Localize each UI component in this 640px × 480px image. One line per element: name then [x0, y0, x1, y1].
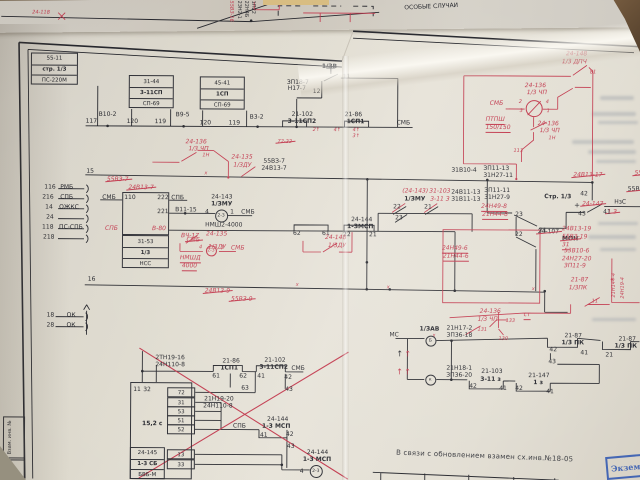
schematic-label: 150/150	[486, 125, 511, 133]
schematic-label: 2	[519, 100, 522, 105]
schematic-label: 1	[230, 210, 234, 216]
schematic-label: 21	[424, 205, 432, 211]
schematic-label: СМБ	[397, 120, 411, 126]
relay-box: 24-1451-3 СББВБ-М	[130, 447, 165, 479]
schematic-label: 113	[513, 149, 523, 154]
schematic-label: 21Н44-6	[443, 254, 469, 262]
schematic-label: 41	[603, 209, 611, 215]
relay-circle: Б	[425, 335, 436, 346]
relay-box: 52	[167, 424, 195, 434]
schematic-label: ↑	[404, 368, 411, 376]
schematic-label: 1/3 ЧП	[527, 90, 547, 96]
schematic-label: В9-5	[176, 112, 190, 118]
schematic-label: 120	[200, 120, 211, 126]
schematic-label: 4	[546, 100, 549, 105]
schematic-label: 42	[284, 375, 292, 381]
schematic-label: 116	[44, 185, 55, 191]
schematic-label: СПБ	[105, 226, 118, 232]
schematic-label: 131	[478, 328, 488, 333]
schematic-label: 55ВЗ-16	[228, 1, 233, 22]
schematic-label: х	[387, 285, 390, 290]
schematic-label: 24-135	[206, 231, 227, 237]
schematic-label: 24-118	[32, 10, 50, 15]
schematic-label: 43	[548, 359, 556, 365]
schematic-label: 118	[42, 225, 53, 231]
schematic-label: 4000	[182, 263, 197, 271]
schematic-label: 31В11-13	[451, 197, 480, 203]
schematic-label: 1/3 ДПЧ	[562, 59, 587, 65]
schematic-label: 22	[515, 232, 523, 238]
schematic-label: 24В13-17	[573, 171, 602, 178]
schematic-label: ВЧ-17	[181, 233, 199, 239]
schematic-label: 22	[393, 204, 401, 210]
schematic-label: ↑	[396, 350, 403, 358]
relay-circle: к	[425, 374, 436, 385]
schematic-label: 14	[45, 205, 53, 211]
schematic-label: 24В13-7	[128, 184, 153, 191]
schematic-label: 1/3ДУ	[328, 243, 346, 249]
schematic-label: 1/ЗМУ	[404, 196, 425, 202]
relay-box	[3, 416, 25, 458]
schematic-label: СМБ	[241, 210, 255, 216]
schematic-label: 18	[47, 313, 55, 319]
schematic-label: 11	[343, 74, 351, 80]
relay-box-row	[123, 193, 168, 236]
schematic-label: 4	[300, 469, 304, 475]
schematic-label: 1-ЗМСП	[347, 224, 373, 230]
schematic-label: 16	[88, 277, 96, 283]
schematic-label: 4	[205, 209, 209, 215]
schematic-label: ЗП11-9	[564, 263, 586, 269]
schematic-label: 43	[287, 444, 295, 450]
schematic-label: 12	[313, 89, 321, 95]
schematic-label: 24-148	[325, 235, 346, 241]
schematic-label: 41	[257, 374, 265, 380]
relay-box-row: 52	[168, 425, 194, 435]
schematic-label: ЗП36-20	[446, 373, 472, 379]
schematic-label: СПБ	[60, 195, 73, 201]
schematic-label: 1СП1	[220, 365, 238, 371]
schematic-label: 72-22	[277, 139, 292, 145]
schematic-label: 23	[395, 215, 403, 221]
schematic-label: НзС	[614, 200, 626, 206]
photographed-schematic-scene: 24-11855ВЗ-1623Н2-122Н4Б1П22ОСОБЫЕ СЛУЧА…	[0, 0, 640, 480]
relay-box-row: 1СП	[201, 88, 244, 99]
schematic-label: 2↑	[313, 128, 320, 133]
schematic-label: ОЖКС	[59, 205, 79, 211]
relay-circle	[525, 100, 542, 117]
schematic-label: 1	[221, 245, 224, 250]
schematic-label: 24Н110-8	[155, 362, 185, 368]
schematic-label: 24Н110-8	[203, 403, 233, 409]
schematic-label: 1 з	[533, 380, 543, 386]
schematic-label: МС	[389, 332, 398, 338]
relay-box-row: 31-53	[123, 236, 168, 247]
stamp-text: Экзем	[611, 461, 640, 474]
schematic-label: 21Н144-4	[612, 273, 617, 298]
schematic-label: 1/3ПК	[569, 285, 587, 291]
relay-box-row: стр. 1/3	[32, 64, 77, 75]
schematic-label: 62	[239, 374, 247, 380]
schematic-label: х	[204, 171, 207, 176]
schematic-label: 1/ЗМУ	[211, 201, 232, 207]
schematic-label: 1П22	[250, 1, 255, 14]
schematic-label: Н17-7	[288, 86, 306, 92]
schematic-label: 21	[369, 232, 377, 238]
schematic-label: 62	[293, 231, 301, 237]
schematic-label: 3	[520, 109, 523, 114]
schematic-label: В11-15	[175, 207, 197, 213]
relay-circle: 2-3	[215, 209, 228, 222]
schematic-label: +	[574, 202, 580, 209]
schematic-label: 130	[498, 337, 508, 342]
relay-box-row: СП-69	[201, 99, 244, 110]
schematic-label: 43	[578, 211, 586, 217]
schematic-label: 133	[506, 319, 516, 324]
schematic-label: 15	[86, 169, 94, 175]
schematic-label: 1/3 ЧП	[478, 317, 498, 323]
relay-box: 45-411СПСП-69	[200, 76, 245, 109]
schematic-label: ОК	[67, 313, 76, 319]
schematic-label: 28	[47, 323, 55, 329]
schematic-label: 21-87	[571, 277, 588, 283]
relay-circle: 2-3	[309, 464, 322, 477]
schematic-label: 55В10-4	[628, 186, 640, 193]
relay-circle: 2-3	[205, 245, 216, 256]
schematic-label: 43	[285, 387, 293, 393]
schematic-label: 24В13-19	[562, 226, 591, 232]
schematic-label: 1СП1	[347, 119, 365, 125]
schematic-label: 42	[549, 347, 557, 353]
schematic-label: СПБ	[233, 424, 246, 430]
schematic-label: 3-11СП2	[288, 119, 317, 125]
schematic-label: 216	[42, 195, 53, 201]
schematic-label: 55ВЗ-17	[634, 170, 640, 177]
schematic-label: 31-103	[429, 189, 450, 195]
schematic-label: 41	[499, 386, 507, 392]
schematic-label: 21	[539, 228, 547, 234]
schematic-label: 31В10-4	[451, 168, 476, 174]
schematic-label: 55ВЗ-7	[107, 176, 129, 183]
schematic-label: ↑	[396, 368, 403, 376]
relay-box: 31-531/3НСС	[122, 235, 169, 268]
schematic-label: 41	[260, 433, 268, 439]
schematic-label: 24В13-7	[261, 166, 286, 172]
relay-box-row: 31-44	[130, 76, 173, 87]
schematic-label: (24-143)	[402, 188, 428, 194]
schematic-label: 11	[592, 299, 598, 304]
relay-box-row: 24-145	[131, 448, 164, 459]
schematic-label: В3-2	[250, 115, 264, 121]
schematic-label: ст	[524, 312, 531, 320]
schematic-label: 53В10-6	[564, 248, 589, 254]
schematic-label: 3↑	[353, 134, 360, 139]
schematic-label: Стр. 1/3	[544, 194, 571, 200]
schematic-label: 21Н44-8	[482, 212, 508, 220]
schematic-label: 1/3 ПК	[614, 344, 637, 350]
schematic-label: 42	[580, 191, 588, 197]
wiring-layer	[0, 0, 640, 480]
schematic-label: 23Н2-1	[236, 1, 241, 19]
schematic-label: 21-103	[481, 369, 502, 375]
schematic-label: 63	[241, 386, 249, 392]
relay-box-row	[4, 417, 24, 459]
schematic-label: 41	[546, 389, 554, 395]
relay-box: 55-11стр. 1/3ПС-220М	[31, 52, 78, 84]
paper-scrap	[263, 0, 329, 5]
relay-box-row: 33	[168, 460, 194, 470]
schematic-label: 4	[199, 245, 202, 250]
schematic-label: х	[532, 287, 535, 292]
schematic-label: 24В13-9	[205, 287, 230, 294]
schematic-label: 42	[286, 432, 294, 438]
schematic-label: 21	[605, 352, 613, 358]
relay-box: 72	[167, 387, 195, 397]
schematic-label: ПС-СПБ	[59, 225, 83, 231]
relay-box-row: ПС-220М	[32, 74, 77, 85]
schematic-label: 1/3 ЧП	[540, 128, 560, 134]
schematic-label: 119	[155, 119, 166, 125]
schematic-label: 1/ЗВ	[322, 64, 337, 70]
relay-box	[122, 192, 169, 235]
schematic-label: 24-136	[480, 309, 501, 315]
schematic-label: 22Н4Б	[243, 1, 248, 18]
relay-box-row: СП-69	[130, 98, 173, 109]
schematic-label: 23	[515, 212, 523, 218]
schematic-label: СМБ	[231, 246, 245, 252]
schematic-label: 3-11 З	[430, 197, 449, 203]
schematic-label: 120	[127, 119, 138, 125]
relay-box-row: 1/3	[123, 247, 168, 258]
schematic-label: 24Н19-4	[621, 277, 626, 299]
relay-box-row: 3-11СП	[130, 87, 173, 98]
stamp-box: Экзем	[605, 453, 640, 480]
schematic-label: ЗП36-18	[446, 333, 472, 339]
schematic-label: 3-11 з	[480, 377, 501, 383]
schematic-label: 1Н	[549, 136, 556, 141]
schematic-label: ОК	[67, 323, 76, 329]
schematic-label: 1	[547, 109, 550, 114]
schematic-label: 4↑	[334, 128, 341, 133]
schematic-label: 31Н27-9	[484, 195, 510, 201]
schematic-label: 42	[515, 386, 523, 392]
schematic-label: 1/3 ПК	[561, 340, 584, 346]
relay-box: 13	[167, 449, 195, 459]
schematic-label: 31Н27-11	[483, 173, 513, 179]
schematic-label: х	[296, 283, 299, 288]
schematic-label: НМШ2-4000	[205, 222, 242, 228]
schematic-label: 42	[469, 384, 477, 390]
schematic-label: 81	[590, 70, 596, 75]
relay-box-row: 55-11	[32, 53, 77, 64]
schematic-label: СМБ	[102, 195, 116, 201]
schematic-label: 41	[580, 350, 588, 356]
schematic-label: 55ВЗ-19	[562, 234, 587, 240]
relay-box: 33	[167, 459, 195, 469]
schematic-label: 24-147	[582, 200, 603, 207]
schematic-label: СМБ	[291, 366, 305, 372]
schematic-label: В10-2	[99, 112, 117, 118]
schematic-label: ↑	[404, 350, 411, 358]
schematic-label: 119	[229, 121, 240, 127]
relay-box-row: НСС	[123, 258, 168, 269]
schematic-label: 3-11СП2	[259, 365, 288, 371]
relay-box-row: БВБ-М	[131, 469, 164, 480]
schematic-label: 218	[43, 235, 54, 241]
schematic-label: СМБ	[490, 101, 504, 107]
schematic-label: 1-3 МСП	[262, 424, 290, 430]
schematic-label: СПБ	[171, 195, 184, 201]
schematic-label: 1-3 МСП	[303, 457, 331, 463]
schematic-label: 1/3ДУ	[233, 163, 251, 169]
schematic-label: 55ВЗ-9	[231, 296, 253, 303]
relay-box: 31-443-11СПСП-69	[129, 75, 174, 108]
schematic-label: 24-135	[231, 155, 252, 161]
schematic-label: 1Н	[202, 153, 209, 158]
schematic-label: 117	[86, 119, 97, 125]
schematic-label: 24	[46, 215, 54, 221]
relay-box-row: 1-3 СБ	[131, 459, 164, 470]
schematic-layer: 24-11855ВЗ-1623Н2-122Н4Б1П22ОСОБЫЕ СЛУЧА…	[0, 0, 640, 480]
schematic-label: 61	[212, 373, 220, 379]
schematic-label: 24-148	[566, 51, 587, 57]
schematic-label: 1/ЗАВ	[420, 327, 440, 333]
black-wires	[0, 3, 640, 480]
schematic-label: РМБ	[60, 185, 73, 191]
relay-box-row: 45-41	[201, 77, 244, 88]
